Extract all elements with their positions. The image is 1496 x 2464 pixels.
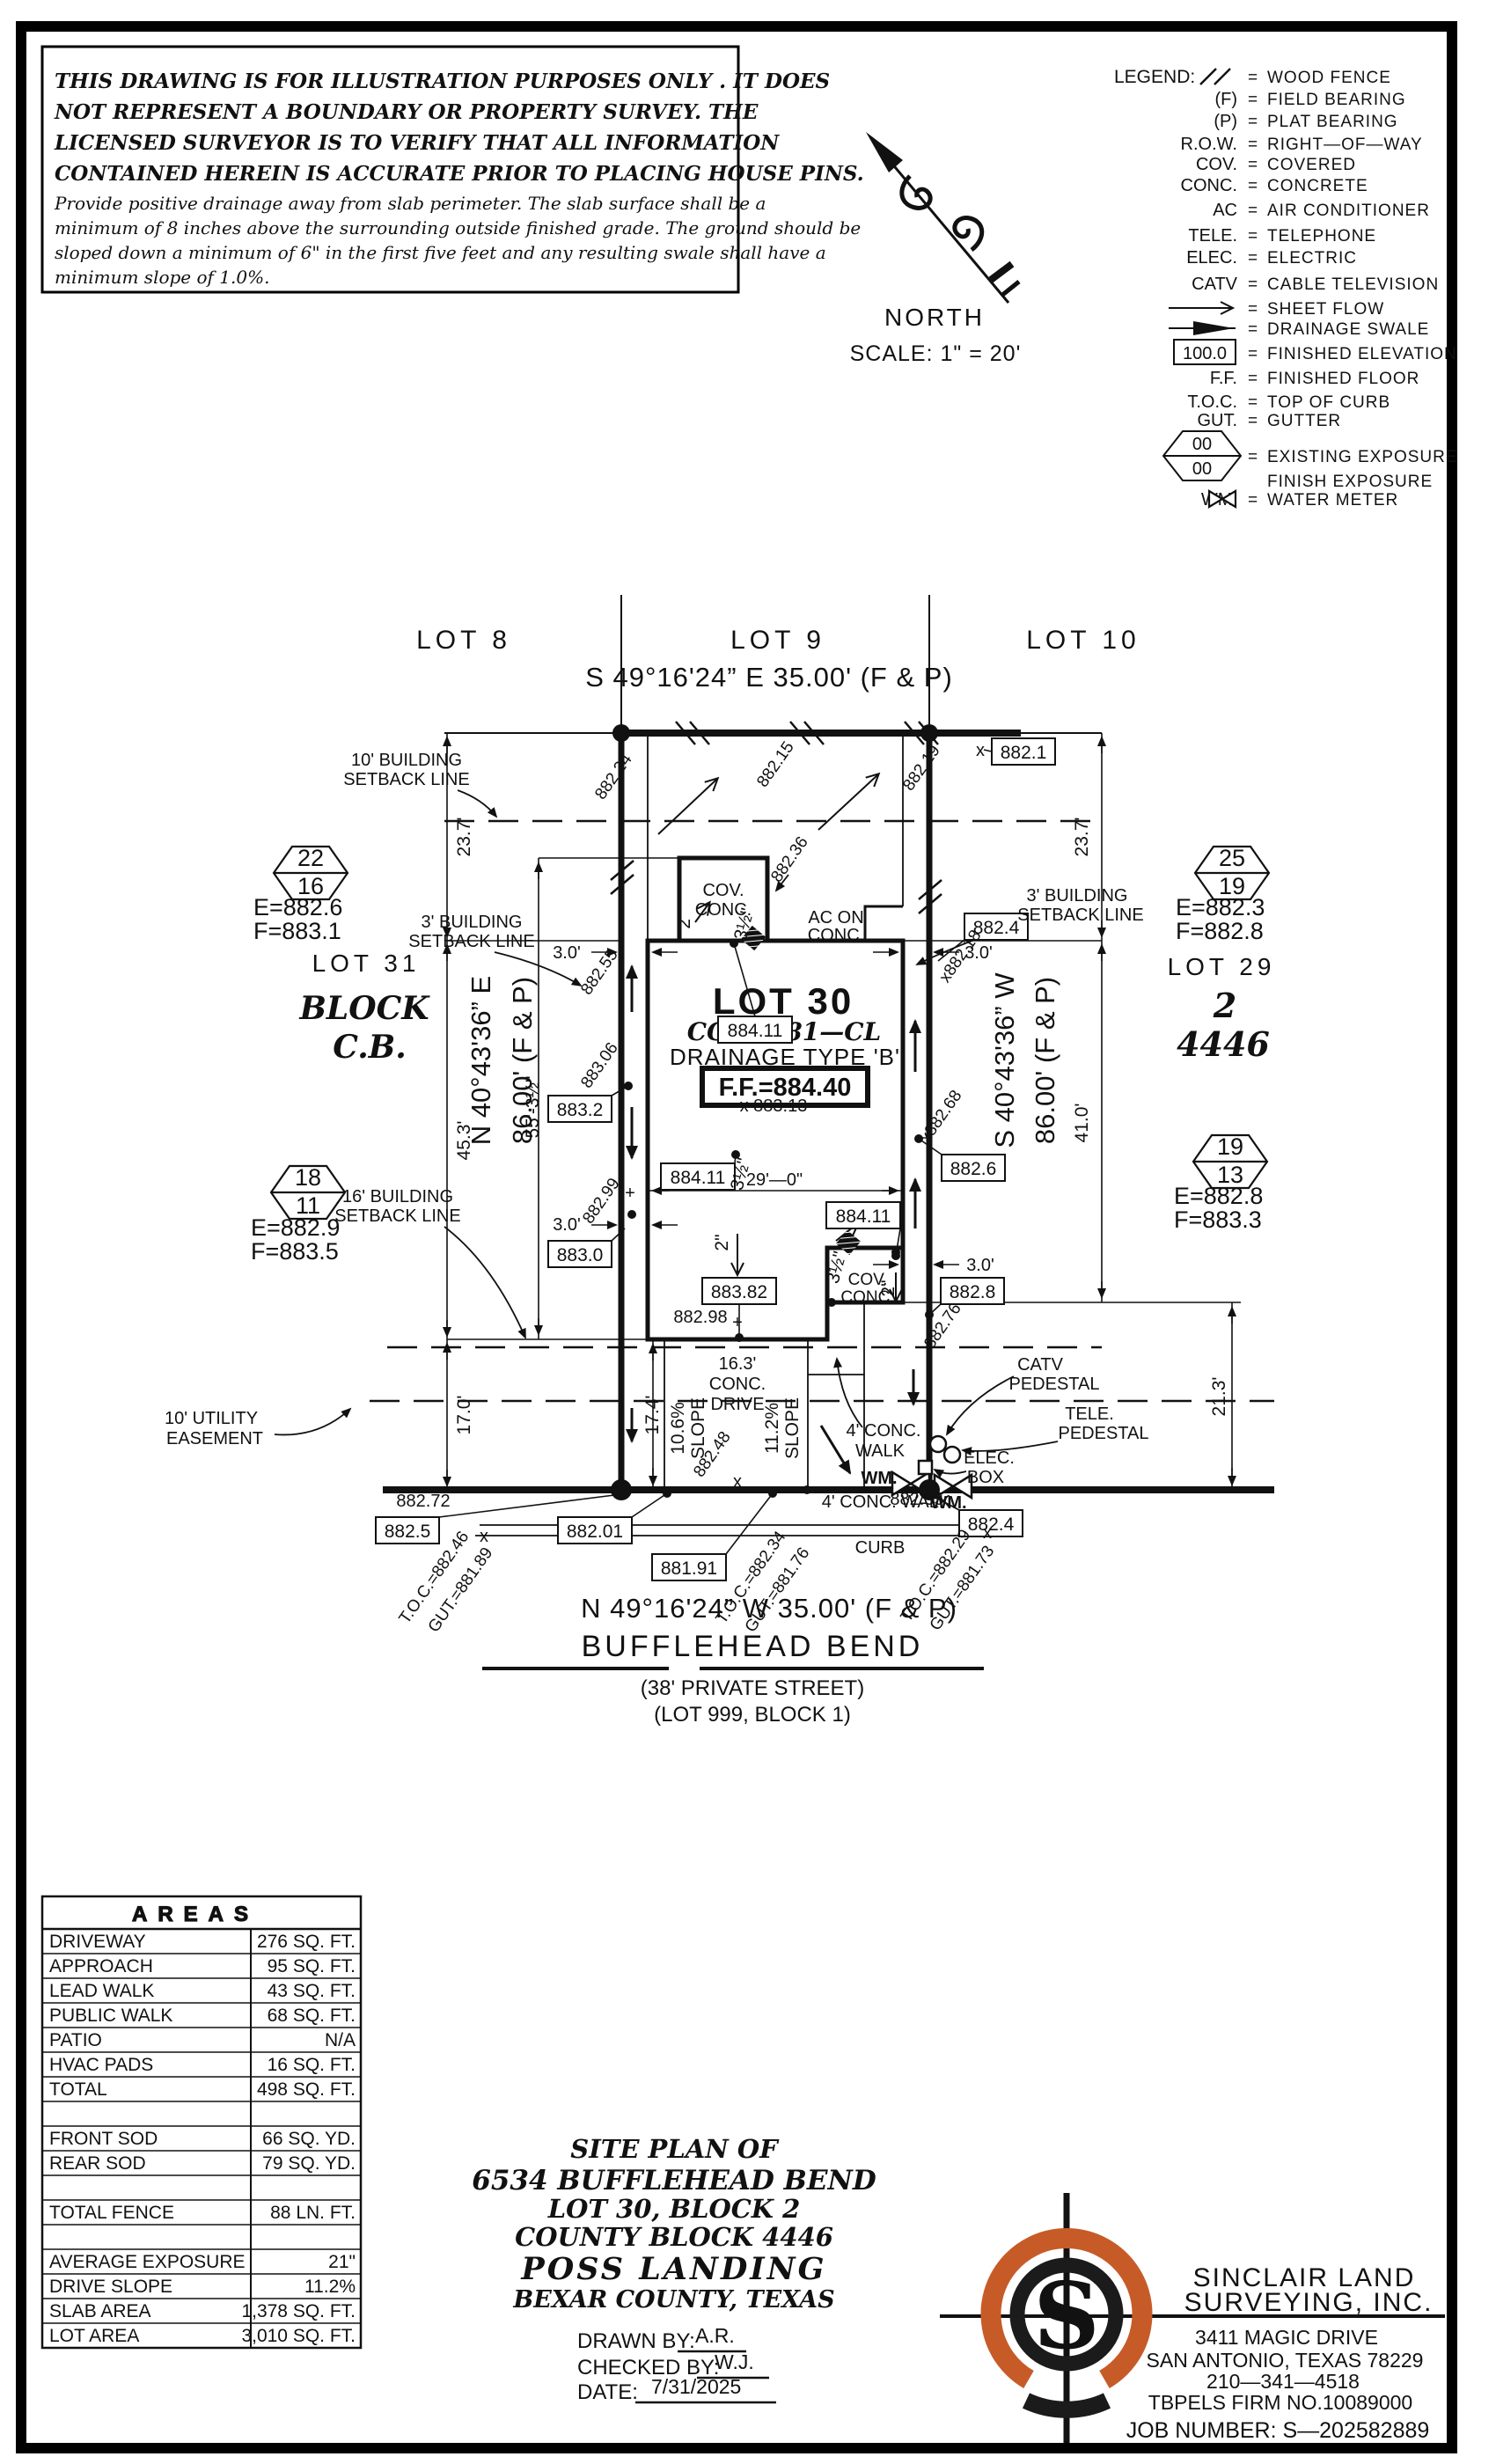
legend-label: ELECTRIC [1267, 249, 1357, 268]
boxed-elevation-value: 884.11 [671, 1168, 726, 1188]
annotation-label: x [480, 1527, 488, 1546]
legend-label: COVERED [1267, 156, 1356, 174]
title-line: 6534 BUFFLEHEAD BEND [472, 2165, 876, 2196]
annotation-label: + [732, 1313, 743, 1332]
legend-symbol: R.O.W. [1181, 135, 1237, 154]
wood-fence-icon [1200, 69, 1216, 84]
table-row-label: AVERAGE EXPOSURE [49, 2252, 246, 2272]
table-row-value: 11.2% [304, 2277, 356, 2297]
table-row-label: REAR SOD [49, 2153, 146, 2174]
legend-symbol: GUT. [1197, 411, 1237, 430]
legend-label: CONCRETE [1267, 177, 1368, 195]
legend-equals: = [1248, 491, 1258, 510]
table-row-label: TOTAL [49, 2079, 107, 2100]
drawn-by-value: A.R. [695, 2324, 735, 2347]
date-label: DATE: [577, 2380, 638, 2404]
annotation-label: 4' CONC. WALK [822, 1492, 951, 1512]
annotation-label: COV. [848, 1271, 888, 1289]
scale-label: SCALE: 1" = 20' [850, 341, 1022, 366]
disclaimer-block: THIS DRAWING IS FOR ILLUSTRATION PURPOSE… [42, 47, 864, 292]
elevation-leader [439, 1495, 614, 1517]
legend-label: GUTTER [1267, 412, 1341, 430]
boxed-elevation-value: 882.1 [1001, 743, 1047, 763]
north-label: NORTH [884, 304, 985, 331]
street-sub2: (LOT 999, BLOCK 1) [654, 1703, 851, 1727]
catv-pedestal-icon [930, 1436, 946, 1452]
legend-equals: = [1248, 370, 1258, 388]
title-block: SITE PLAN OF 6534 BUFFLEHEAD BEND LOT 30… [472, 2134, 876, 2404]
block-label: BLOCK [298, 990, 430, 1027]
annotation-label: WM. [861, 1469, 897, 1488]
annotation-label: + [625, 1184, 635, 1203]
legend-symbol: AC [1213, 201, 1237, 220]
rotated-spot-elevation: 882.99 [579, 1175, 624, 1228]
annotation-label: 10' UTILITY [165, 1409, 258, 1428]
rear-bearing: S 49°16'24” E 35.00' (F & P) [585, 662, 953, 693]
annotation-label: SETBACK LINE [343, 770, 469, 789]
table-row-value: 68 SQ. FT. [268, 2006, 356, 2026]
table-row-label: SLAB AREA [49, 2301, 151, 2321]
legend-equals: = [1248, 393, 1258, 412]
annotation-label: 16.3' [719, 1354, 757, 1374]
spot-elevation-dot [735, 1333, 744, 1342]
legend-label: TELEPHONE [1267, 227, 1376, 246]
checked-by-value: W.J. [715, 2350, 754, 2373]
spot-elevation-dot [663, 1489, 671, 1498]
existing-exposure-value: 18 [295, 1164, 321, 1191]
annotation-label: 882.72 [396, 1492, 450, 1511]
annotation-label: 4' CONC. [847, 1421, 921, 1441]
boxed-elevation-value: 882.01 [567, 1522, 623, 1542]
exposure-hex-icon: 00 [1192, 435, 1212, 454]
table-row-value: 66 SQ. YD. [262, 2129, 356, 2149]
legend-label: FIELD BEARING [1267, 91, 1406, 109]
dimension-text: 17.4' [642, 1396, 663, 1435]
legend-equals: = [1248, 320, 1258, 339]
legend-label: RIGHT—OF—WAY [1267, 136, 1423, 154]
tele-pedestal-icon [944, 1447, 960, 1463]
disclaimer-note: Provide positive drainage away from slab… [54, 193, 766, 214]
rotated-spot-elevation: x882.68 [916, 1087, 965, 1146]
annotation-label: SETBACK LINE [1017, 906, 1143, 925]
lot10-label: LOT 10 [1026, 626, 1140, 655]
rotated-spot-elevation: 882.24 [591, 751, 636, 803]
title-line: LOT 30, BLOCK 2 [547, 2194, 801, 2224]
legend-equals: = [1248, 202, 1258, 220]
legend-symbol: (P) [1214, 112, 1237, 131]
elec-box-icon [919, 1461, 932, 1474]
legend-symbol: T.O.C. [1187, 392, 1237, 412]
annotation-label: 882.98 [673, 1308, 727, 1327]
annotation-label: AC ON [808, 908, 863, 928]
annotation-label: PEDESTAL [1009, 1375, 1100, 1394]
legend-symbol: CONC. [1181, 176, 1237, 195]
ac-pad [865, 906, 903, 941]
legend-symbol: ELEC. [1186, 248, 1237, 268]
firm-address-2: SAN ANTONIO, TEXAS 78229 [1147, 2349, 1424, 2372]
annotation-label: x [983, 1523, 992, 1543]
disclaimer-note: minimum slope of 1.0%. [55, 267, 269, 288]
dimension-text: SLOPE [782, 1397, 803, 1459]
legend-title: LEGEND: [1114, 67, 1195, 87]
annotation-label: SETBACK LINE [334, 1206, 460, 1226]
boxed-elevation-value: 883.82 [711, 1282, 767, 1302]
exposure-hex-icon: 00 [1192, 459, 1212, 479]
lot31-label: LOT 31 [312, 950, 421, 977]
county-line: BEXAR COUNTY, TEXAS [512, 2286, 834, 2314]
areas-table: AREAS DRIVEWAY276 SQ. FT.APPROACH95 SQ. … [42, 1896, 361, 2348]
boxed-elevation-value: 883.2 [557, 1100, 604, 1120]
annotation-label: CURB [855, 1538, 906, 1558]
rotated-spot-elevation: 882.36 [767, 833, 812, 886]
existing-elevation: E=882.9 [251, 1214, 340, 1241]
subdivision-name: POSS LANDING [520, 2251, 826, 2287]
existing-elevation: E=882.8 [1174, 1183, 1263, 1209]
table-row-label: PUBLIC WALK [49, 2006, 172, 2026]
legend-equals: = [1248, 177, 1258, 195]
dimension-text: 21.3' [1209, 1377, 1229, 1417]
annotation-label: 3.0' [966, 1256, 994, 1275]
legend-label: AIR CONDITIONER [1267, 202, 1430, 220]
drainage-swale-icon [1193, 321, 1234, 335]
spot-elevation-dot [891, 1251, 900, 1260]
dimension-text: 45.3' [454, 1121, 474, 1161]
firm-phone: 210—341—4518 [1206, 2370, 1360, 2393]
annotation-label: WALK [855, 1441, 906, 1461]
annotation-label: EASEMENT [166, 1429, 263, 1448]
legend-label: CABLE TELEVISION [1267, 275, 1439, 294]
annotation-label: CONC. [695, 900, 752, 920]
legend-equals: = [1248, 91, 1258, 109]
legend-equals: = [1248, 69, 1258, 87]
annotation-label: 29'—0" [746, 1170, 803, 1190]
annotation-label: BOX [967, 1468, 1004, 1487]
annotation-label: x [733, 1472, 742, 1492]
boxed-elevation-value: 882.6 [950, 1159, 997, 1179]
table-row-value: 21" [328, 2252, 356, 2272]
table-row-label: DRIVEWAY [49, 1932, 146, 1952]
annotation-label: PEDESTAL [1059, 1424, 1149, 1443]
rotated-spot-elevation: 882.19 [899, 742, 944, 795]
legend-equals: = [1248, 300, 1258, 319]
street-sub1: (38' PRIVATE STREET) [641, 1676, 864, 1700]
existing-exposure-value: 22 [297, 845, 324, 871]
finish-elevation: F=883.1 [253, 918, 341, 944]
firm-info: SINCLAIR LAND SURVEYING, INC. 3411 MAGIC… [1126, 2263, 1434, 2443]
boxed-elevation-value: 883.0 [557, 1245, 604, 1265]
disclaimer-line: NOT REPRESENT A BOUNDARY OR PROPERTY SUR… [54, 100, 759, 124]
elevation-leader [984, 750, 992, 752]
legend-label: TOP OF CURB [1267, 393, 1390, 412]
boxed-elevation-value: 881.91 [661, 1558, 717, 1579]
east-bearing: S 40°43'36” W [989, 972, 1020, 1148]
legend: =WOOD FENCE(F)=FIELD BEARING(P)=PLAT BEA… [1163, 69, 1458, 510]
annotation-label: SETBACK LINE [408, 932, 534, 951]
existing-elevation: E=882.6 [253, 894, 342, 920]
annotation-label: 10' BUILDING [351, 751, 462, 770]
table-row-value: 1,378 SQ. FT. [241, 2301, 356, 2321]
dimension-text: 11.2% [762, 1403, 782, 1454]
logo-letter: S [1033, 2262, 1099, 2370]
legend-label: PLAT BEARING [1267, 113, 1398, 131]
table-row-value: 95 SQ. FT. [268, 1956, 356, 1976]
annotation-label: x [976, 741, 985, 760]
table-row-value: 88 LN. FT. [270, 2203, 356, 2223]
table-row-label: LOT AREA [49, 2326, 139, 2346]
lot8-label: LOT 8 [416, 626, 511, 655]
annotation-label: CATV [1017, 1355, 1064, 1375]
block-cb-label: C.B. [333, 1029, 407, 1066]
annotation-label: x 883.13 [740, 1096, 808, 1116]
spot-elevation-dot [925, 1310, 934, 1319]
table-row-value: 79 SQ. YD. [262, 2153, 356, 2174]
legend-equals: = [1248, 345, 1258, 363]
dimension-text: SLOPE [688, 1397, 708, 1459]
title-line: SITE PLAN OF [570, 2134, 780, 2164]
logo-bottom-arc [1026, 2401, 1107, 2409]
firm-name-2: SURVEYING, INC. [1184, 2288, 1434, 2317]
table-row-value: 276 SQ. FT. [257, 1932, 356, 1952]
legend-label: DRAINAGE SWALE [1267, 320, 1429, 339]
finish-elevation: F=883.5 [251, 1238, 339, 1265]
legend-symbol: TELE. [1188, 226, 1237, 246]
legend-symbol: CATV [1192, 275, 1238, 294]
county-block-4446-label: 4446 [1177, 1024, 1270, 1064]
finished-elevation-icon: 100.0 [1183, 344, 1227, 363]
dimension-text: 2" [674, 912, 694, 928]
legend-label: WOOD FENCE [1267, 69, 1391, 87]
dimension-text: 23.7' [454, 818, 474, 857]
rotated-spot-elevation: 882.55 [577, 946, 622, 999]
firm-job-number: JOB NUMBER: S—202582889 [1126, 2418, 1430, 2443]
firm-tbpels: TBPELS FIRM NO.10089000 [1148, 2391, 1412, 2414]
legend-label: EXISTING EXPOSURE [1267, 448, 1458, 466]
dimension-text: 55'-3½" [523, 1075, 543, 1138]
lot9-label: LOT 9 [730, 626, 825, 655]
finish-elevation: F=882.8 [1176, 918, 1264, 944]
table-row-label: APPROACH [49, 1956, 153, 1976]
table-row-label: LEAD WALK [49, 1981, 154, 2001]
table-row-value: 498 SQ. FT. [257, 2079, 356, 2100]
site-plan-sheet: THIS DRAWING IS FOR ILLUSTRATION PURPOSE… [0, 0, 1496, 2464]
lot29-label: LOT 29 [1168, 953, 1276, 980]
wood-fence-icon [1214, 69, 1230, 84]
disclaimer-note: minimum of 8 inches above the surroundin… [55, 217, 861, 238]
table-row-value: 43 SQ. FT. [268, 1981, 356, 2001]
annotation-label: 3.0' [553, 943, 581, 963]
west-bearing: N 40°43'36” E [466, 976, 496, 1145]
disclaimer-line: LICENSED SURVEYOR IS TO VERIFY THAT ALL … [54, 131, 780, 155]
annotation-label: CONC. [840, 1288, 894, 1307]
legend-label: FINISHED FLOOR [1267, 370, 1419, 388]
annotation-label: 3.0' [964, 943, 993, 963]
table-row-value: N/A [325, 2030, 356, 2050]
annotation-label: 3.0' [553, 1215, 581, 1235]
spot-elevation-dot [730, 939, 738, 948]
legend-equals: = [1248, 156, 1258, 174]
legend-equals: = [1248, 227, 1258, 246]
boxed-elevation-value: 884.11 [836, 1206, 891, 1227]
annotation-label: CONC. [709, 1375, 766, 1394]
legend-symbol: COV. [1196, 155, 1237, 174]
existing-exposure-value: 25 [1219, 845, 1245, 871]
date-value: 7/31/2025 [651, 2375, 741, 2398]
dimension-text: 17.0' [454, 1396, 474, 1435]
existing-exposure-value: 19 [1217, 1133, 1243, 1160]
dimension-text: 10.6% [668, 1402, 688, 1455]
street-name: BUFFLEHEAD BEND [582, 1630, 924, 1663]
annotation-label: 3' BUILDING [422, 913, 523, 932]
annotation-label: ELEC. [964, 1448, 1015, 1468]
drawn-by-label: DRAWN BY: [577, 2329, 695, 2353]
swale-marker [836, 1230, 861, 1255]
table-row-label: PATIO [49, 2030, 102, 2050]
disclaimer-line: CONTAINED HEREIN IS ACCURATE PRIOR TO PL… [55, 162, 864, 186]
survey-drawing: THIS DRAWING IS FOR ILLUSTRATION PURPOSE… [0, 0, 1496, 2464]
legend-label: SHEET FLOW [1267, 300, 1384, 319]
north-arrow [866, 132, 1019, 303]
annotation-label: CONC. [808, 926, 864, 945]
legend-equals: = [1248, 113, 1258, 131]
areas-title: AREAS [132, 1903, 259, 1926]
legend-equals: = [1248, 448, 1258, 466]
annotation-label: DRIVE [710, 1395, 764, 1414]
east-bearing-length: 86.00' (F & P) [1030, 977, 1060, 1144]
legend-symbol: F.F. [1210, 369, 1237, 388]
table-row-value: 3,010 SQ. FT. [241, 2326, 356, 2346]
dimension-text: 41.0' [1072, 1104, 1092, 1143]
lot30-label: LOT 30 [713, 980, 854, 1022]
legend-symbol: (F) [1214, 90, 1237, 109]
boxed-elevation-value: 882.8 [950, 1282, 996, 1302]
areas-rows: DRIVEWAY276 SQ. FT.APPROACH95 SQ. FT.LEA… [42, 1932, 361, 2346]
finish-elevation: F=883.3 [1174, 1206, 1262, 1233]
north-arrow-head [866, 132, 903, 172]
legend-equals: = [1248, 275, 1258, 294]
rotated-spot-elevation: 882.15 [753, 738, 798, 791]
legend-label: FINISHED ELEVATION [1267, 345, 1457, 363]
table-row-label: DRIVE SLOPE [49, 2277, 172, 2297]
elevation-leader [632, 1493, 667, 1517]
spot-elevation-dot [768, 1489, 777, 1498]
legend-label: FINISH EXPOSURE [1267, 473, 1433, 491]
block2-label: 2 [1213, 986, 1236, 1025]
firm-address-1: 3411 MAGIC DRIVE [1195, 2326, 1378, 2349]
boxed-elevation-value: 884.11 [728, 1021, 783, 1041]
dimension-text: 23.7' [1072, 818, 1092, 857]
rotated-spot-elevation: 883.06 [577, 1039, 622, 1092]
boxed-elevation-value: 882.5 [385, 1522, 431, 1542]
legend-equals: = [1248, 136, 1258, 154]
annotation-label: 16' BUILDING [342, 1187, 453, 1206]
disclaimer-line: THIS DRAWING IS FOR ILLUSTRATION PURPOSE… [55, 70, 830, 93]
dimension-text: 2" [712, 1234, 732, 1250]
spot-elevation-dot [624, 1082, 633, 1090]
annotation-label: COV. [702, 881, 744, 900]
table-row-label: TOTAL FENCE [49, 2203, 174, 2223]
legend-equals: = [1248, 412, 1258, 430]
title-line: COUNTY BLOCK 4446 [515, 2222, 833, 2252]
existing-elevation: E=882.3 [1176, 894, 1265, 920]
legend-equals: = [1248, 249, 1258, 268]
table-row-label: HVAC PADS [49, 2055, 153, 2075]
disclaimer-note: sloped down a minimum of 6" in the first… [55, 242, 826, 263]
table-row-label: FRONT SOD [49, 2129, 158, 2149]
legend-label: WATER METER [1267, 491, 1398, 510]
annotation-label: TELE. [1065, 1404, 1114, 1424]
table-row-value: 16 SQ. FT. [268, 2055, 356, 2075]
annotation-label: 3' BUILDING [1027, 886, 1128, 906]
